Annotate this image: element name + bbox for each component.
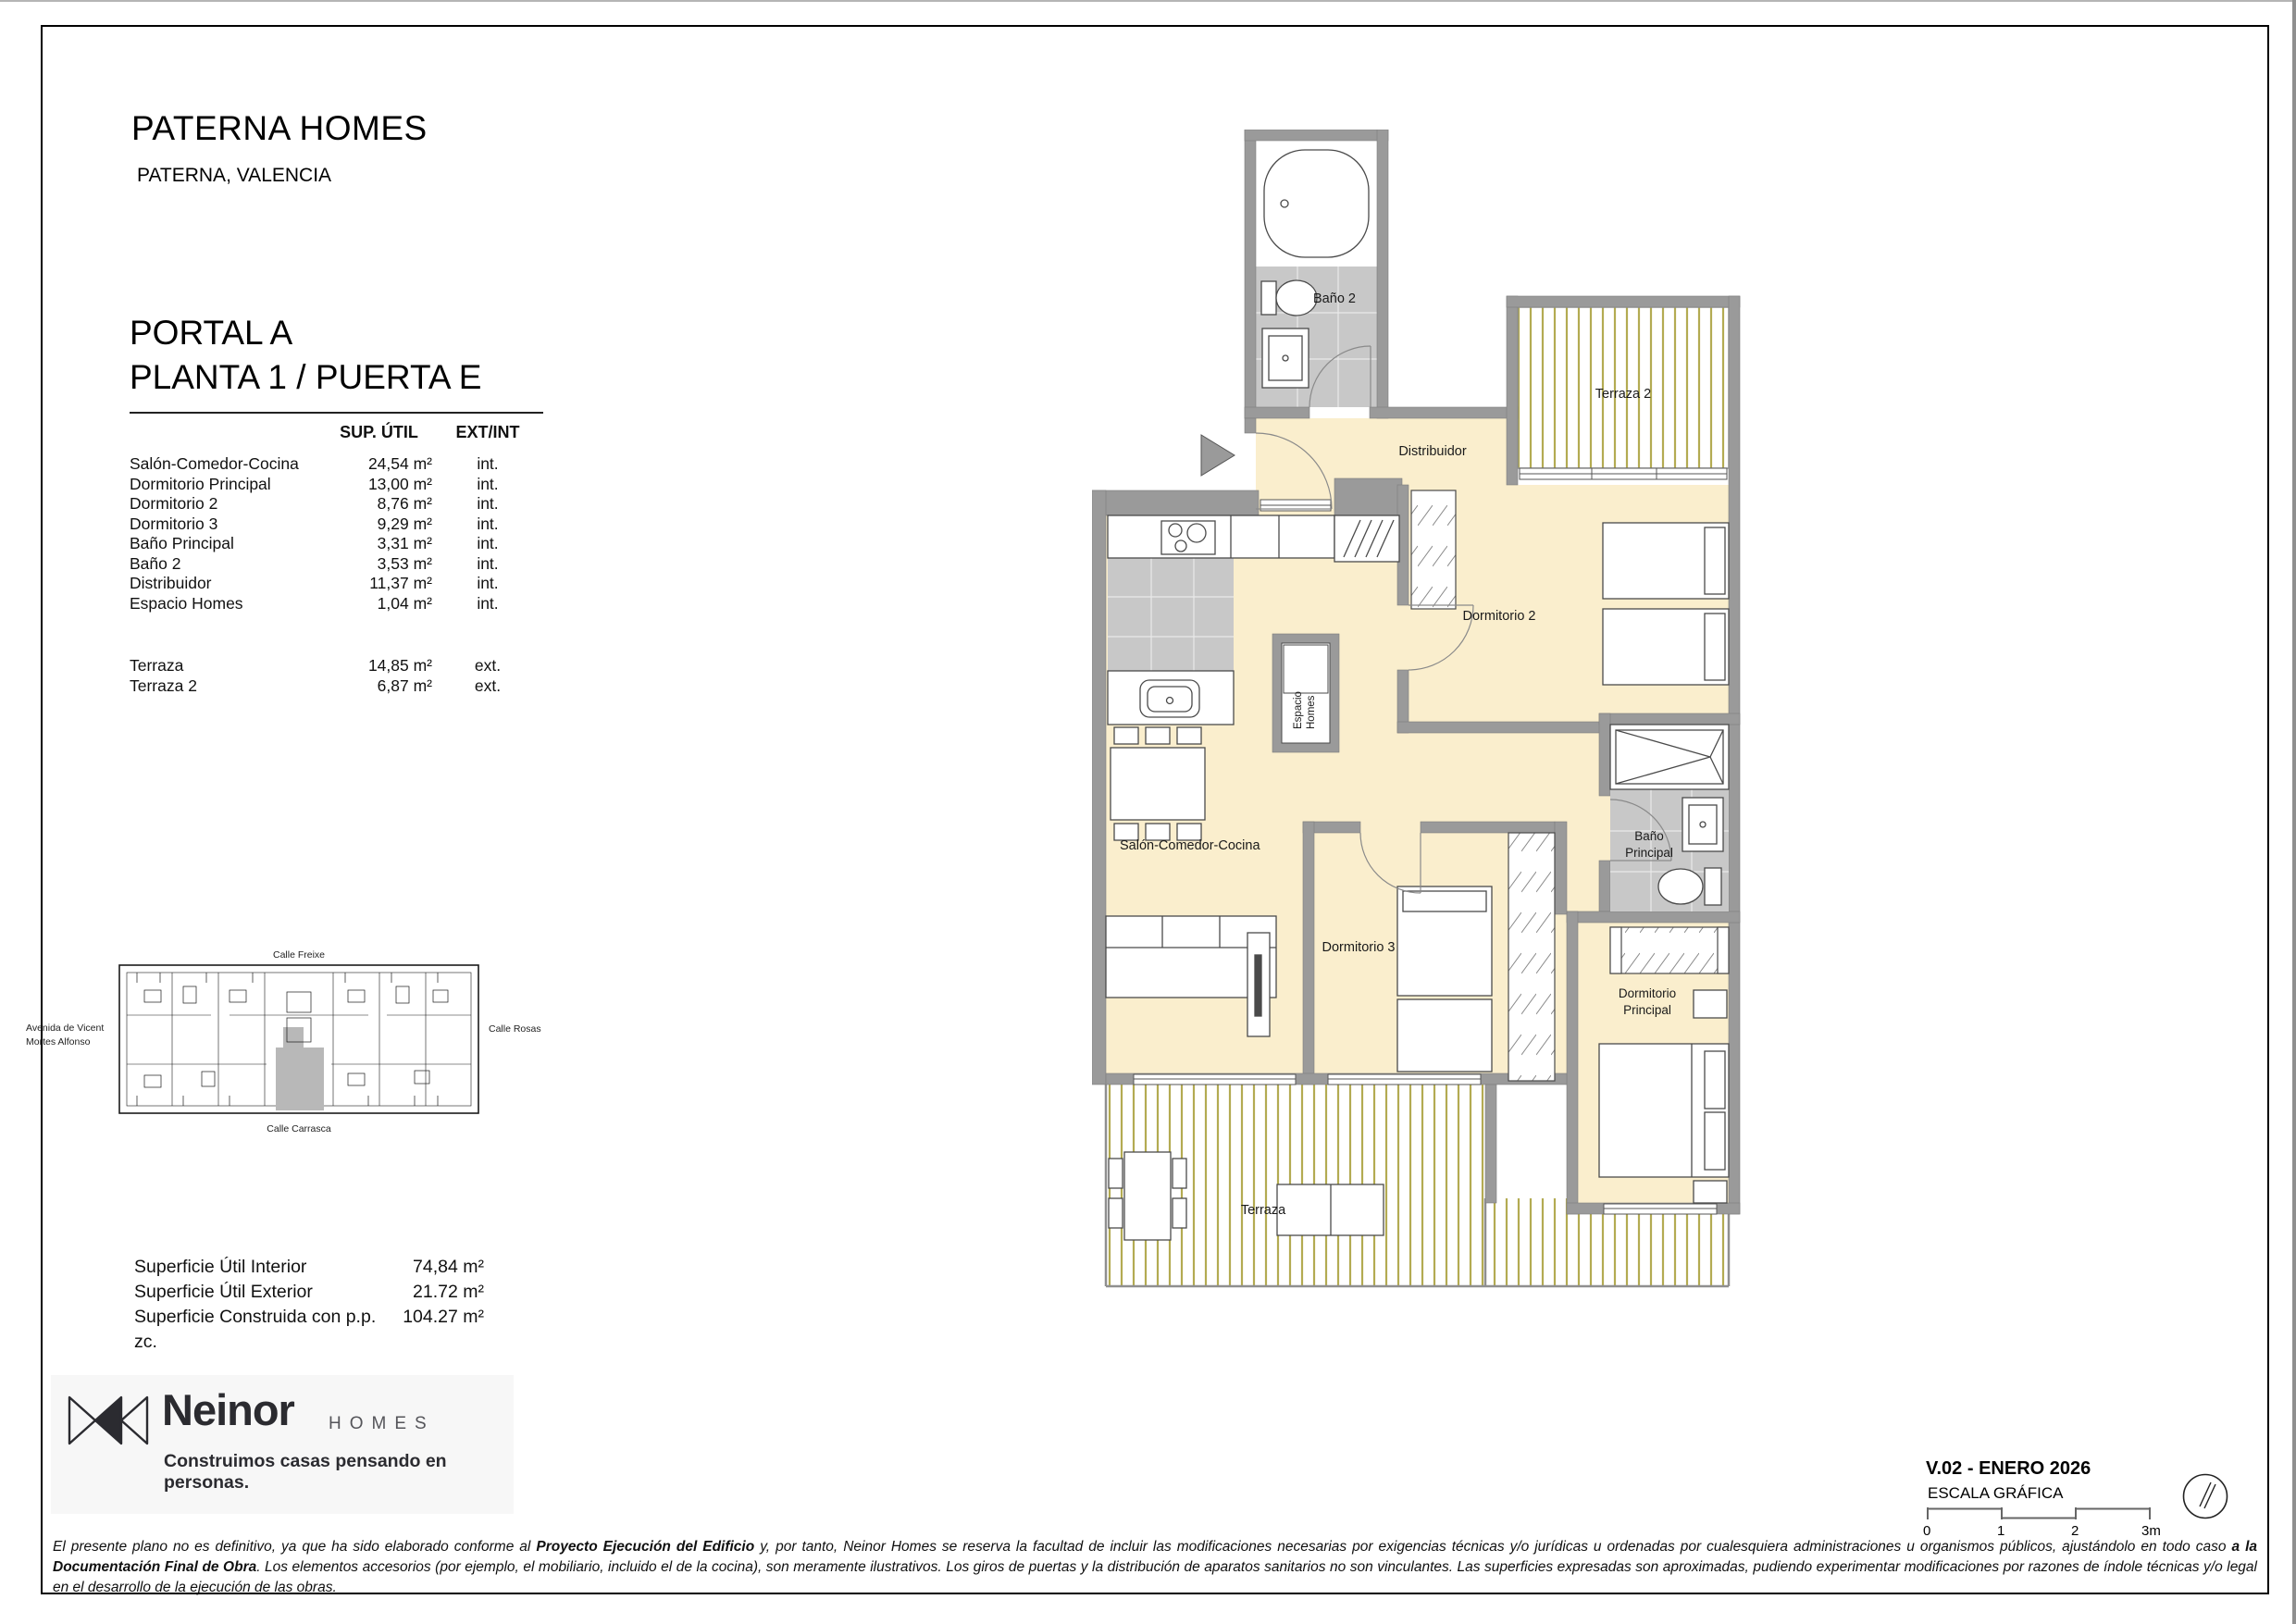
- terrace-table: [1124, 1152, 1171, 1240]
- site-plan-map: [118, 964, 479, 1117]
- summary-row: Superficie Construida con p.p. zc.104.27…: [134, 1305, 484, 1330]
- scale-label: ESCALA GRÁFICA: [1928, 1484, 2063, 1503]
- room-label-dorm-principal-2: Principal: [1623, 1003, 1671, 1017]
- floor-plan: Baño 2 Terraza 2 Distribuidor Salón-Come…: [1092, 130, 1758, 1309]
- kitchen-tile-floor: [1108, 558, 1234, 671]
- nightstand: [1694, 990, 1727, 1018]
- col-header-ext-int: EXT/INT: [432, 423, 543, 454]
- surface-summary: Superficie Útil Interior74,84 m² Superfi…: [134, 1255, 484, 1330]
- table-row: Dormitorio 28,76 m²int.: [130, 494, 543, 514]
- north-compass-icon: [2181, 1472, 2229, 1520]
- room-label-terraza: Terraza: [1241, 1203, 1286, 1218]
- street-label-right: Calle Rosas: [489, 1023, 572, 1035]
- table-row: Salón-Comedor-Cocina24,54 m²int.: [130, 454, 543, 475]
- room-label-distribuidor: Distribuidor: [1398, 444, 1466, 459]
- street-label-top: Calle Freixe: [118, 949, 479, 961]
- bathtub: [1264, 150, 1369, 257]
- room-label-terraza2: Terraza 2: [1595, 387, 1651, 402]
- table-row: Dormitorio Principal13,00 m²int.: [130, 475, 543, 495]
- room-label-espacio-homes-1: Espacio: [1293, 691, 1304, 729]
- espacio-homes-closet: [1272, 634, 1339, 752]
- scale-bar: [1927, 1506, 2156, 1521]
- room-label-dorm3: Dormitorio 3: [1322, 940, 1396, 955]
- table-top-rule: [130, 412, 543, 414]
- summary-row: Superficie Útil Exterior21.72 m²: [134, 1280, 484, 1305]
- room-label-banyo2: Baño 2: [1313, 291, 1356, 306]
- summary-row: Superficie Útil Interior74,84 m²: [134, 1255, 484, 1280]
- dining-table: [1111, 748, 1205, 820]
- room-label-banyo-principal-2: Principal: [1625, 846, 1673, 860]
- room-label-dorm-principal-1: Dormitorio: [1619, 986, 1676, 1000]
- brand-block: Neinor HOMES Construimos casas pensando …: [51, 1375, 514, 1514]
- col-header-sup-util: SUP. ÚTIL: [326, 423, 432, 454]
- table-row: Distribuidor11,37 m²int.: [130, 574, 543, 594]
- street-label-bottom: Calle Carrasca: [118, 1123, 479, 1134]
- project-title: PATERNA HOMES: [131, 109, 428, 148]
- kitchen-counter: [1108, 515, 1334, 558]
- room-label-dorm2: Dormitorio 2: [1463, 609, 1536, 624]
- table-row: Terraza 26,87 m²ext.: [130, 676, 543, 697]
- room-label-espacio-homes-2: Homes: [1306, 695, 1317, 729]
- street-label-left: Avenida de Vicent Mortes Alfonso: [26, 1022, 113, 1049]
- page-edge-top: [0, 0, 2296, 2]
- table-row: Baño 23,53 m²int.: [130, 554, 543, 575]
- toilet-banyo2: [1261, 281, 1276, 315]
- site-map-highlight-unit: [276, 1027, 324, 1110]
- project-location: PATERNA, VALENCIA: [137, 165, 331, 187]
- brand-tagline: Construimos casas pensando en personas.: [164, 1451, 514, 1494]
- unit-heading: PORTAL A PLANTA 1 / PUERTA E: [130, 311, 481, 400]
- disclaimer-text: El presente plano no es definitivo, ya q…: [53, 1537, 2257, 1598]
- entry-arrow-icon: [1201, 435, 1235, 476]
- table-row: Dormitorio 39,29 m²int.: [130, 514, 543, 535]
- page-edge-right: [2292, 0, 2296, 1624]
- version-label: V.02 - ENERO 2026: [1926, 1458, 2091, 1480]
- shower: [1610, 725, 1729, 789]
- unit-portal: PORTAL A: [130, 311, 481, 355]
- table-row: Espacio Homes1,04 m²int.: [130, 594, 543, 614]
- brand-name: Neinor: [162, 1384, 294, 1435]
- nightstand: [1694, 1181, 1727, 1203]
- room-label-salon: Salón-Comedor-Cocina: [1120, 838, 1260, 853]
- unit-floor-door: PLANTA 1 / PUERTA E: [130, 355, 481, 400]
- areas-table: SUP. ÚTIL EXT/INT Salón-Comedor-Cocina24…: [130, 412, 543, 696]
- toilet-banyo-principal: [1705, 868, 1721, 905]
- brand-suffix: HOMES: [329, 1414, 435, 1434]
- room-label-banyo-principal-1: Baño: [1634, 829, 1664, 843]
- table-row: Terraza14,85 m²ext.: [130, 656, 543, 676]
- neinor-logo-icon: [68, 1392, 160, 1449]
- table-row: Baño Principal3,31 m²int.: [130, 534, 543, 554]
- plan-sheet-page: PATERNA HOMES PATERNA, VALENCIA PORTAL A…: [0, 0, 2296, 1624]
- bed-dorm3-2: [1397, 999, 1492, 1072]
- areas-table-header: SUP. ÚTIL EXT/INT: [130, 423, 543, 454]
